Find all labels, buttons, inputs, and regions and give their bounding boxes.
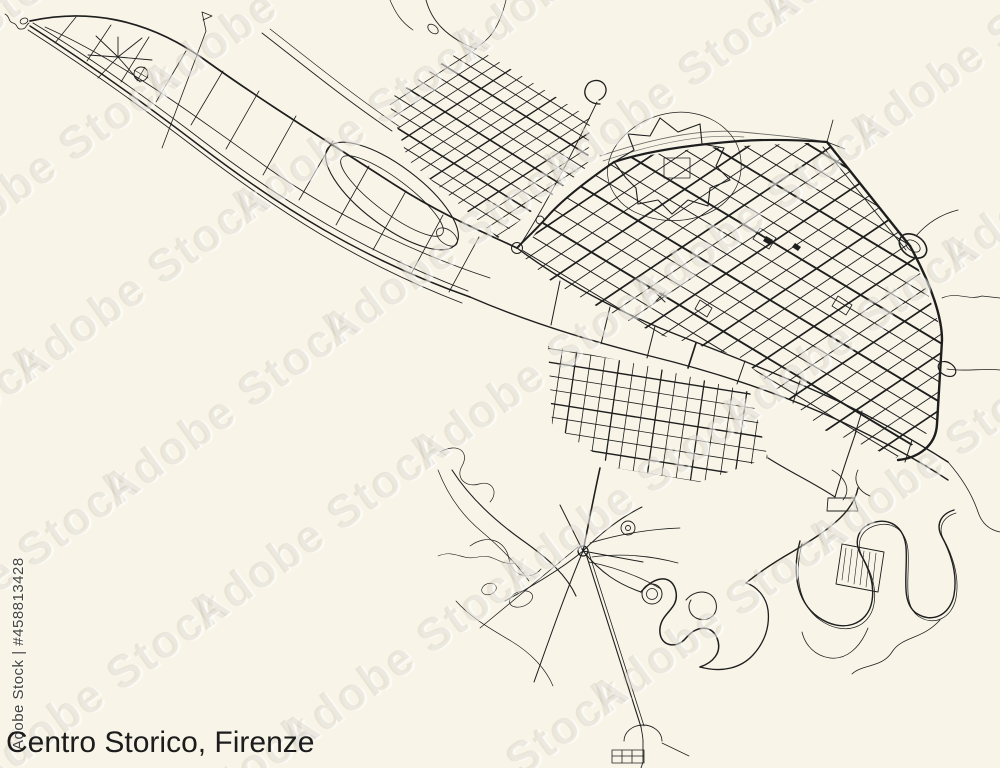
porta-romana-junction bbox=[480, 505, 680, 727]
tail-road-features bbox=[612, 725, 689, 768]
hill-switchback-roads bbox=[641, 579, 768, 670]
historic-center-grid bbox=[394, 0, 1000, 679]
page-title: Centro Storico, Firenze bbox=[6, 726, 314, 760]
top-edge-spur-roads bbox=[390, 0, 827, 247]
watermark-vertical-text: Adobe Stock | #458813428 bbox=[10, 557, 27, 750]
southeast-country-lanes bbox=[802, 462, 1000, 674]
hook-road bbox=[585, 80, 606, 104]
fortezza-da-basso-outline bbox=[607, 112, 741, 220]
oltrarno-grid bbox=[493, 266, 818, 575]
tail-avenue bbox=[586, 554, 641, 727]
stock-map-image: Adobe StockAdobe StockAdobe StockAdobe S… bbox=[0, 0, 1000, 768]
southwest-country-lanes bbox=[438, 448, 576, 686]
ponte-vecchio bbox=[688, 343, 696, 368]
cascine-park-roads bbox=[5, 12, 517, 303]
piazzale-michelangelo-area bbox=[827, 470, 884, 592]
viale-dei-colli bbox=[746, 488, 957, 629]
via-romana bbox=[583, 468, 600, 551]
street-map bbox=[0, 0, 1000, 768]
small-block-rect bbox=[612, 750, 644, 763]
